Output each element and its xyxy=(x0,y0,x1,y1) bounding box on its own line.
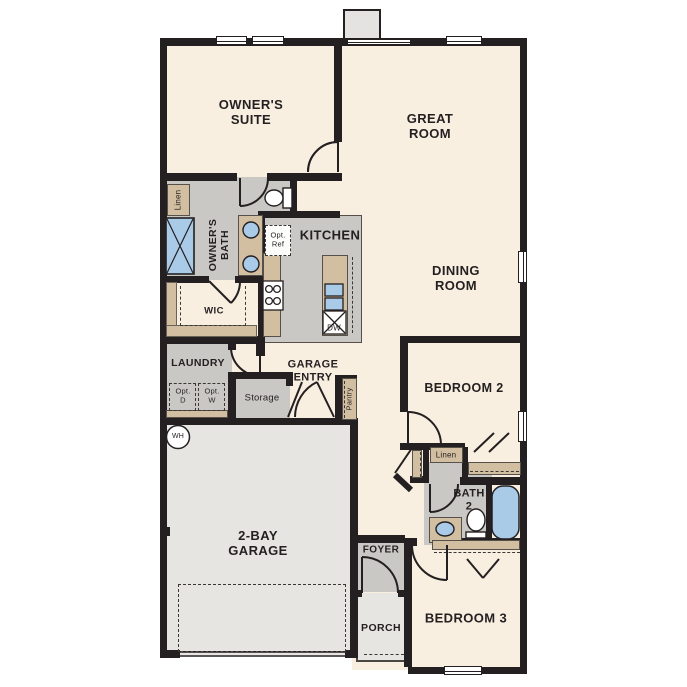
shower xyxy=(166,218,194,274)
label-opt-washer: Opt. W xyxy=(205,387,220,404)
sink xyxy=(436,522,454,536)
bedroom2-closet-doors xyxy=(474,433,509,452)
room-label-bedroom2: BEDROOM 2 xyxy=(424,381,503,395)
room-label-foyer: FOYER xyxy=(363,544,399,556)
room-label-garage-entry: GARAGE ENTRY xyxy=(288,358,339,383)
room-label-garage: 2-BAY GARAGE xyxy=(228,529,287,559)
kitchen-sink xyxy=(325,284,343,310)
room-label-bath2: BATH 2 xyxy=(453,487,484,512)
room-label-kitchen: KITCHEN xyxy=(300,229,361,244)
label-opt-dryer: Opt. D xyxy=(176,387,191,404)
label-linen-hall: Linen xyxy=(436,450,457,459)
label-opt-ref: Opt. Ref xyxy=(271,231,286,248)
room-label-great-room: GREAT ROOM xyxy=(407,112,454,142)
sink xyxy=(243,222,259,238)
toilet xyxy=(466,509,486,538)
room-label-laundry: LAUNDRY xyxy=(171,357,225,369)
label-linen-owners: Linen xyxy=(173,190,182,211)
label-dishwasher: DW xyxy=(327,323,341,332)
toilet xyxy=(265,188,292,208)
stove xyxy=(263,281,283,310)
garage-door xyxy=(180,652,345,656)
bathtub xyxy=(492,486,519,539)
room-label-owners-suite: OWNER'S SUITE xyxy=(219,98,283,128)
sink xyxy=(243,256,259,272)
floor-plan: OWNER'S SUITE GREAT ROOM DINING ROOM KIT… xyxy=(0,0,687,687)
room-label-pantry: Pantry xyxy=(346,388,355,411)
room-label-bedroom3: BEDROOM 3 xyxy=(425,612,507,627)
room-label-dining-room: DINING ROOM xyxy=(432,264,480,294)
room-label-wic: WIC xyxy=(204,307,224,318)
bedroom3-closet-doors xyxy=(467,559,499,578)
label-water-heater: WH xyxy=(172,433,184,441)
room-label-owners-bath: OWNER'S BATH xyxy=(207,219,231,272)
room-label-storage: Storage xyxy=(245,394,280,405)
room-label-porch: PORCH xyxy=(361,622,401,634)
doors-and-fixtures-layer xyxy=(0,0,687,687)
